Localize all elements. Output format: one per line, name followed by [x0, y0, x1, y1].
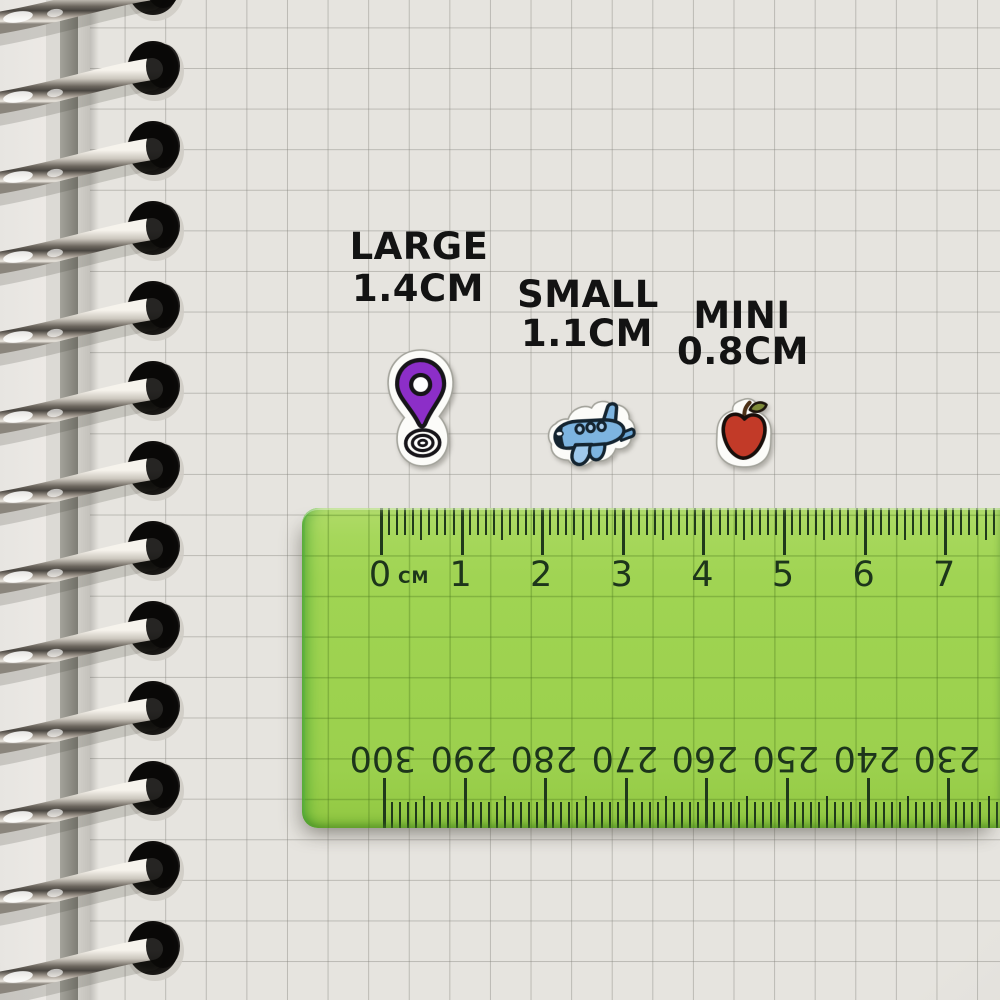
ruler: CM 01234567300290280270260250240230 — [302, 508, 1000, 828]
apple-sticker — [713, 396, 775, 470]
notebook-photo: LARGE 1.4CM SMALL 1.1CM MINI 0.8CM — [0, 0, 1000, 1000]
spiral-ring — [0, 121, 184, 194]
airplane-sticker — [543, 397, 640, 473]
label-large-size: 1.4CM — [352, 270, 484, 307]
label-large-name: LARGE — [350, 228, 489, 265]
hole-overlap — [146, 764, 180, 808]
grid-paper — [90, 0, 1000, 1000]
spiral-ring — [0, 361, 184, 434]
hole-overlap — [146, 844, 180, 888]
spiral-ring — [0, 521, 184, 594]
location-pin-sticker — [383, 346, 460, 471]
spiral-ring — [0, 761, 184, 834]
hole-overlap — [146, 924, 180, 968]
spiral-ring — [0, 201, 184, 274]
hole-overlap — [146, 524, 180, 568]
label-small-name: SMALL — [517, 276, 659, 313]
hole-overlap — [146, 44, 180, 88]
hole-overlap — [146, 204, 180, 248]
spiral-ring — [0, 681, 184, 754]
spiral-ring — [0, 0, 184, 34]
label-mini-name: MINI — [693, 297, 790, 334]
ruler-sheen — [302, 508, 1000, 828]
spiral-ring — [0, 841, 184, 914]
label-mini-size: 0.8CM — [677, 333, 809, 370]
spiral-ring — [0, 281, 184, 354]
hole-overlap — [146, 124, 180, 168]
spiral-ring — [0, 601, 184, 674]
hole-overlap — [146, 364, 180, 408]
spiral-ring — [0, 921, 184, 994]
label-small-size: 1.1CM — [521, 315, 653, 352]
hole-overlap — [146, 444, 180, 488]
spiral-ring — [0, 441, 184, 514]
hole-overlap — [146, 284, 180, 328]
hole-overlap — [146, 684, 180, 728]
hole-overlap — [146, 604, 180, 648]
spiral-binding — [0, 0, 215, 1000]
spiral-ring — [0, 41, 184, 114]
